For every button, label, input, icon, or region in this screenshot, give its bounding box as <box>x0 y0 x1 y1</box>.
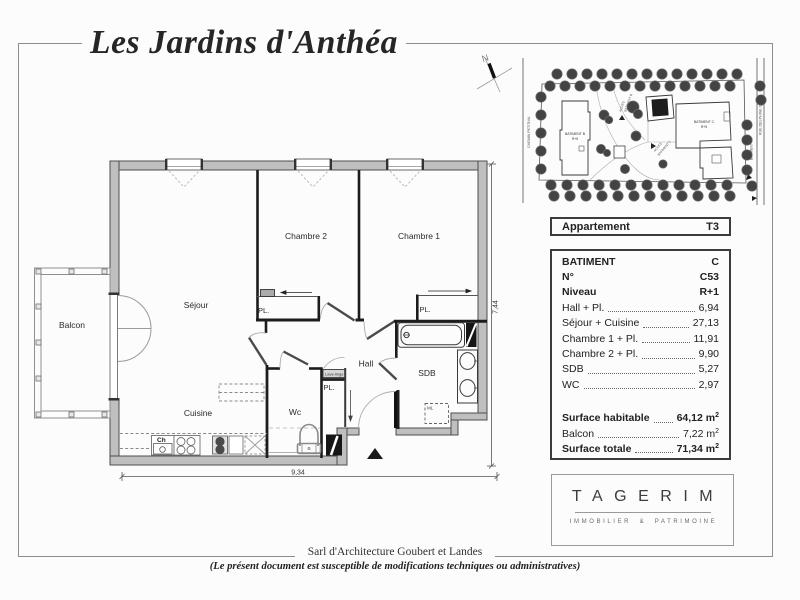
svg-text:PL.: PL. <box>324 383 335 392</box>
svg-text:N: N <box>481 52 490 64</box>
svg-text:PL.: PL. <box>258 306 269 315</box>
svg-text:Lave-linge: Lave-linge <box>325 372 344 377</box>
svg-text:9,34: 9,34 <box>291 470 305 477</box>
svg-text:PL.: PL. <box>420 305 431 314</box>
svg-text:CHEMIN PETITNIA: CHEMIN PETITNIA <box>527 116 531 148</box>
svg-text:7,44: 7,44 <box>493 300 500 314</box>
svg-text:Hall: Hall <box>359 359 374 369</box>
svg-text:BATIMENT C: BATIMENT C <box>694 120 715 124</box>
svg-text:ML: ML <box>427 406 434 411</box>
svg-text:Séjour: Séjour <box>184 300 209 310</box>
svg-text:BATIMENT B: BATIMENT B <box>565 132 586 136</box>
svg-text:Ch: Ch <box>157 437 166 444</box>
svg-text:Wc: Wc <box>289 407 302 417</box>
svg-text:SDB: SDB <box>418 368 436 378</box>
svg-text:R+5: R+5 <box>701 125 707 129</box>
svg-text:Chambre 1: Chambre 1 <box>398 231 440 241</box>
svg-text:Balcon: Balcon <box>59 320 85 330</box>
svg-text:R+5: R+5 <box>572 137 578 141</box>
svg-text:Chambre 2: Chambre 2 <box>285 231 327 241</box>
svg-text:Cuisine: Cuisine <box>184 408 213 418</box>
